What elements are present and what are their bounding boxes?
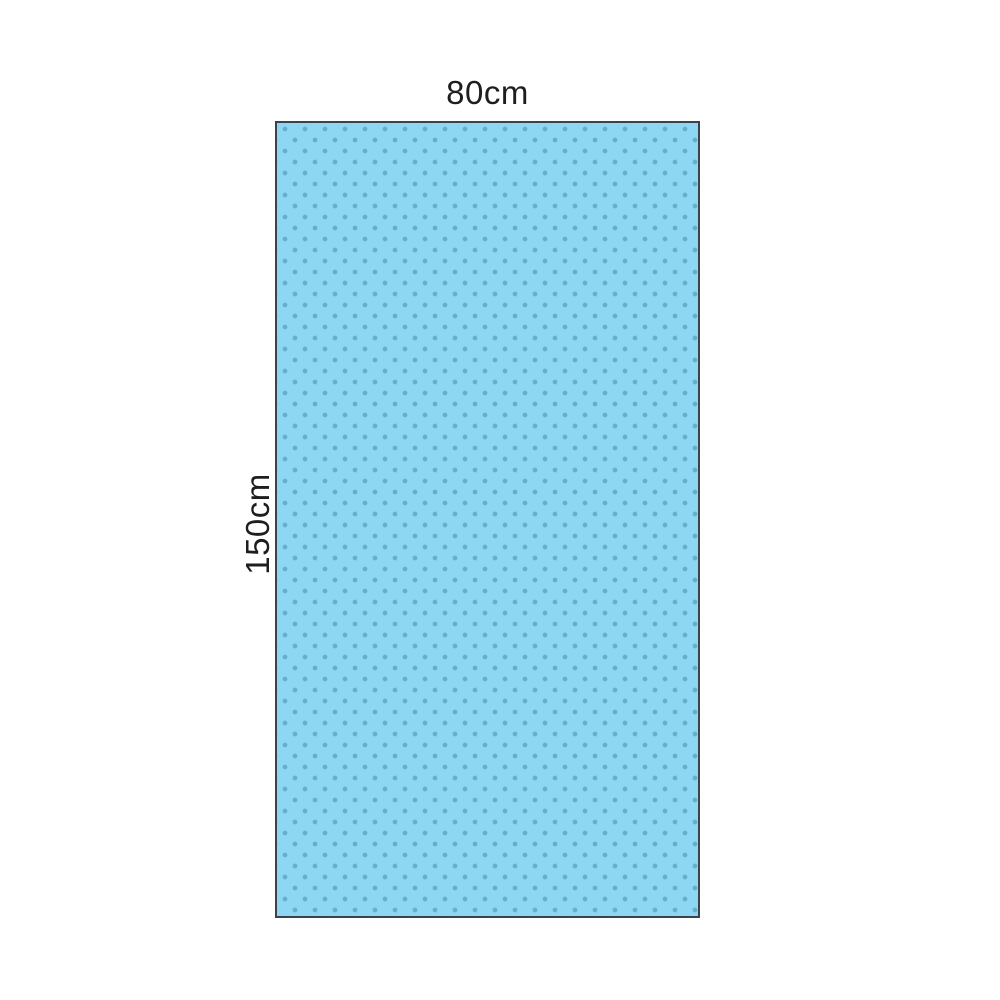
diagram-canvas: 80cm 150cm — [0, 0, 1000, 1000]
drape-rectangle — [275, 121, 700, 918]
height-dimension-label: 150cm — [239, 473, 277, 575]
width-dimension-label: 80cm — [275, 74, 700, 112]
